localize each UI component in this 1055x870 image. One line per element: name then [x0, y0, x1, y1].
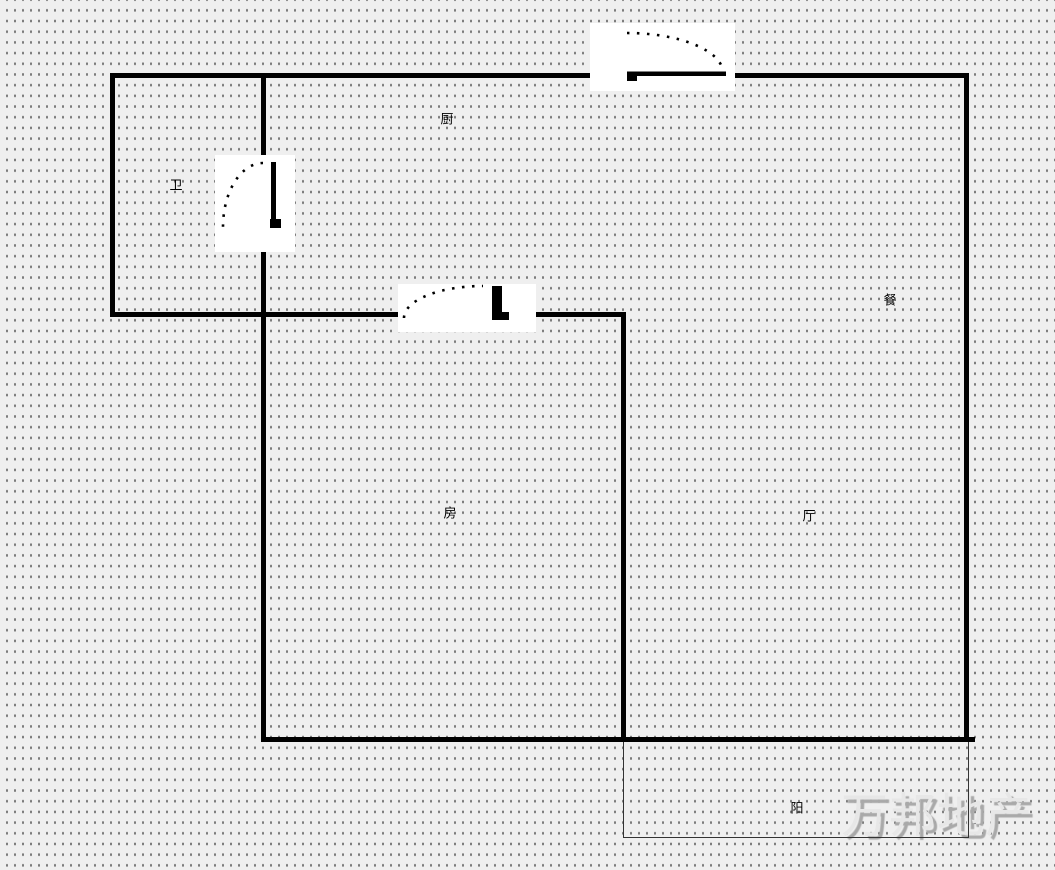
room-label-balcony: 阳	[790, 802, 803, 815]
door-arc	[223, 163, 263, 227]
bedroom-door-swing-icon	[398, 284, 536, 332]
door-arc	[404, 286, 483, 318]
door-panel	[271, 162, 276, 228]
door-swing-graphic	[398, 284, 536, 332]
room-label-dining: 餐	[883, 294, 896, 307]
room-label-bedroom: 房	[443, 507, 456, 520]
wall-bedroom-right	[621, 312, 626, 742]
room-label-bathroom: 卫	[169, 179, 182, 192]
door-swing-graphic	[590, 23, 735, 91]
door-arc	[627, 33, 723, 73]
door-hinge	[492, 312, 509, 320]
wall-top-exterior	[110, 73, 969, 78]
door-panel	[627, 72, 726, 77]
door-panel	[492, 286, 502, 316]
room-label-kitchen: 厨	[440, 113, 453, 126]
wall-left-exterior	[110, 73, 115, 317]
wall-right-exterior	[964, 73, 969, 742]
door-hinge	[270, 219, 281, 228]
door-swing-graphic	[215, 155, 295, 252]
bathroom-door-swing-icon	[215, 155, 295, 252]
kitchen-door-swing-icon	[590, 23, 735, 91]
balcony-outline	[623, 742, 969, 838]
door-hinge	[627, 72, 637, 82]
room-label-living-room: 厅	[802, 510, 815, 523]
wall-bathroom-kitchen-bottom	[110, 312, 626, 317]
floor-plan-canvas: 万邦地产 厨 卫 餐 房 厅 阳	[0, 0, 1055, 870]
